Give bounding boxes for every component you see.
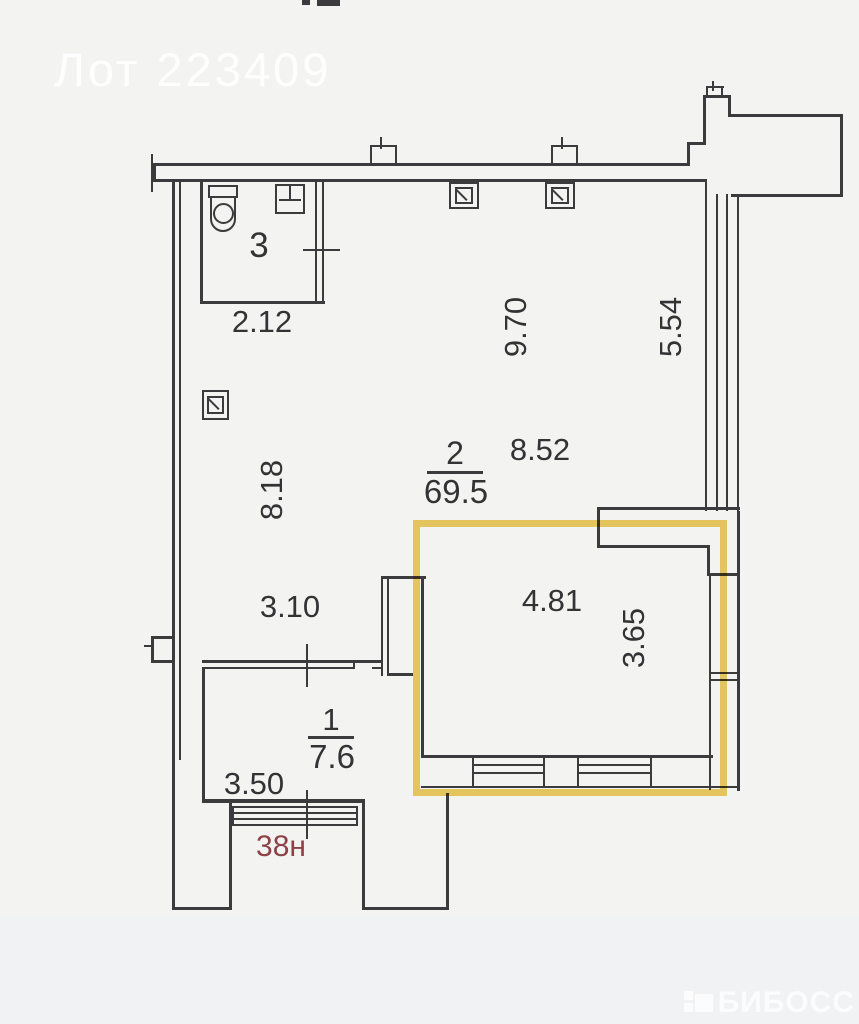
wall-segment [731,194,843,197]
wall-stub [370,145,397,147]
biboss-watermark: БИБОСС [684,986,855,1020]
dimension-label: 2.12 [192,303,332,341]
wall-stub [576,145,578,165]
dimension-tick [380,137,382,149]
wall-segment [703,95,706,145]
wall-segment [151,636,154,663]
dimension-label: 3.10 [220,588,360,626]
wall-segment [387,673,413,676]
wall-segment [362,907,449,910]
wall-segment [716,194,718,511]
sink-icon [289,186,291,200]
wall-segment [202,660,383,663]
window-symbol [232,824,358,826]
room-area: 69.5 [386,473,526,511]
wall-segment [153,163,690,166]
wall-segment [705,181,707,511]
wall-segment [153,179,707,182]
dimension-label: 9.70 [497,257,535,397]
biboss-label: БИБОСС [718,986,855,1020]
window-symbol [232,818,358,820]
wall-segment [151,636,175,639]
biboss-logo-icon [684,988,714,1018]
wall-segment [597,507,740,510]
highlight-rectangle [413,520,727,796]
window-symbol [232,806,358,808]
wall-segment [353,660,355,669]
wall-segment [362,801,365,910]
wall-stub [551,145,578,147]
toilet-icon [213,203,234,224]
dimension-label: 5.54 [652,257,690,397]
wall-segment [737,194,739,511]
room-number: 3 [189,227,329,265]
wall-stub [706,86,708,96]
dimension-tick [306,644,308,687]
window-symbol [356,806,358,826]
dimension-tick [561,137,563,149]
wall-segment [172,180,175,910]
unit-number-label: 38н [211,828,351,866]
wall-segment [737,511,740,791]
window-symbol [232,806,234,826]
wall-segment [179,180,181,760]
dimension-label: 3.65 [615,568,653,708]
wall-segment [151,660,175,663]
dimension-tick [712,81,714,91]
dimension-label: 8.18 [253,420,291,560]
floorplan-drawing: 3 2.12 9.70 5.54 8.18 2 69.5 8.52 3.10 4… [0,0,859,1024]
dimension-tick [151,154,153,192]
wall-segment [381,577,383,676]
wall-segment [387,577,389,676]
wall-segment [840,114,843,197]
sink-icon [279,199,301,201]
floorplan-page: Лот 223409 [0,0,859,1024]
wall-stub [370,145,372,165]
wall-segment [446,793,449,910]
wall-segment [202,667,354,669]
wall-segment [687,142,690,166]
wall-segment [728,114,843,117]
dimension-label: 4.81 [482,582,622,620]
dimension-tick [144,645,152,647]
room-number: 1 [261,701,401,739]
wall-segment [172,907,232,910]
dimension-label: 3.50 [184,765,324,803]
window-symbol [232,812,358,814]
wall-stub [721,86,723,96]
wall-stub [395,145,397,165]
wall-segment [726,194,728,511]
wall-stub [551,145,553,165]
dimension-label: 8.52 [470,431,610,469]
